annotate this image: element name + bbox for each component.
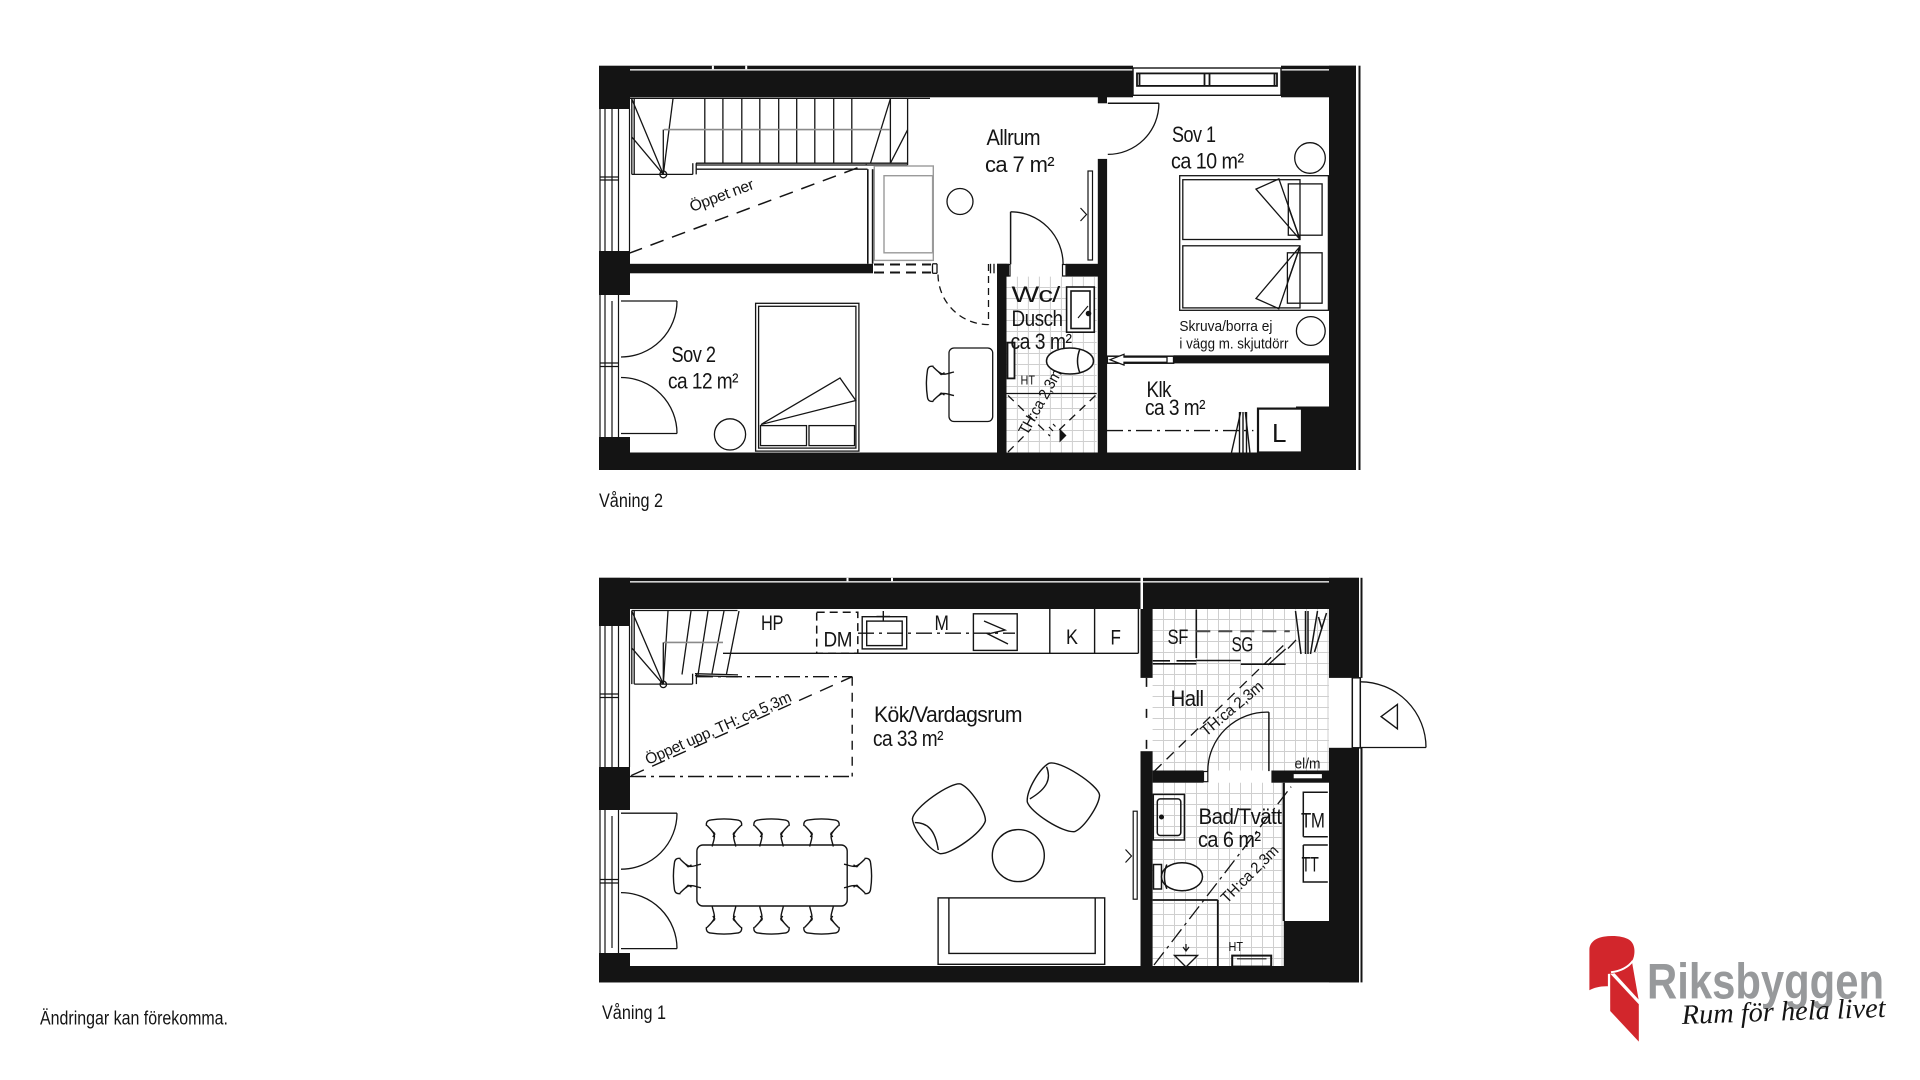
svg-text:Sov 2: Sov 2 bbox=[672, 342, 716, 367]
svg-text:ca 12 m²: ca 12 m² bbox=[668, 369, 738, 394]
svg-text:Skruva/borra ej: Skruva/borra ej bbox=[1179, 318, 1272, 335]
svg-text:TM: TM bbox=[1301, 810, 1325, 833]
svg-text:el/m: el/m bbox=[1295, 756, 1321, 773]
svg-text:Bad/Tvätt: Bad/Tvätt bbox=[1199, 804, 1282, 829]
svg-text:M: M bbox=[935, 612, 949, 635]
svg-text:K: K bbox=[1066, 626, 1078, 649]
svg-text:Ändringar kan förekomma.: Ändringar kan förekomma. bbox=[40, 1009, 228, 1030]
svg-text:Våning 1: Våning 1 bbox=[602, 1003, 666, 1024]
svg-text:DM: DM bbox=[824, 629, 853, 652]
svg-text:Sov 1: Sov 1 bbox=[1172, 122, 1216, 147]
svg-text:ca 33 m²: ca 33 m² bbox=[873, 726, 943, 751]
svg-text:ca 10 m²: ca 10 m² bbox=[1171, 149, 1244, 174]
svg-text:HP: HP bbox=[761, 612, 783, 635]
svg-text:Våning 2: Våning 2 bbox=[599, 491, 663, 512]
svg-text:TT: TT bbox=[1302, 854, 1319, 877]
svg-text:SG: SG bbox=[1232, 634, 1254, 657]
svg-text:Dusch: Dusch bbox=[1012, 306, 1063, 331]
svg-text:L: L bbox=[1272, 418, 1286, 448]
svg-text:F: F bbox=[1111, 627, 1121, 650]
svg-text:Wc/: Wc/ bbox=[1012, 282, 1062, 307]
svg-text:ca 6 m²: ca 6 m² bbox=[1198, 827, 1261, 852]
svg-text:ca 3 m²: ca 3 m² bbox=[1145, 395, 1205, 420]
svg-text:Allrum: Allrum bbox=[987, 125, 1041, 150]
svg-text:SF: SF bbox=[1168, 626, 1189, 649]
svg-text:HT: HT bbox=[1229, 939, 1244, 954]
svg-text:Hall: Hall bbox=[1171, 686, 1204, 711]
svg-text:ca 7 m²: ca 7 m² bbox=[985, 152, 1054, 177]
svg-text:Kök/Vardagsrum: Kök/Vardagsrum bbox=[874, 702, 1022, 727]
svg-text:ca 3 m²: ca 3 m² bbox=[1011, 329, 1072, 354]
svg-text:HT: HT bbox=[1021, 373, 1036, 388]
svg-text:i vägg m. skjutdörr: i vägg m. skjutdörr bbox=[1179, 336, 1288, 353]
